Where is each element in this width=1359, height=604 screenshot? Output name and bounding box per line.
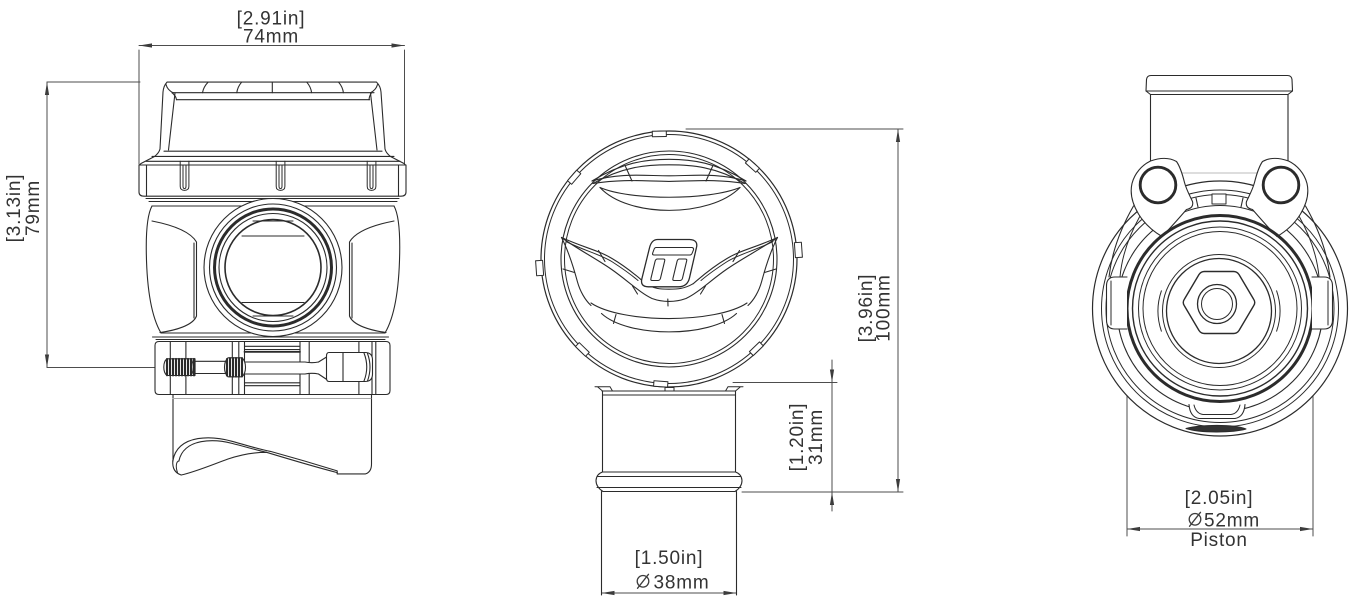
svg-text:[1.20in]: [1.20in]	[787, 403, 808, 472]
svg-text:31mm: 31mm	[806, 409, 827, 465]
svg-text:Piston: Piston	[1190, 530, 1248, 551]
svg-text:100mm: 100mm	[874, 274, 895, 341]
svg-text:79mm: 79mm	[23, 180, 44, 236]
svg-text:[2.05in]: [2.05in]	[1185, 488, 1254, 509]
svg-text:[1.50in]: [1.50in]	[635, 548, 704, 569]
svg-text:52mm: 52mm	[1204, 511, 1260, 532]
svg-text:[3.13in]: [3.13in]	[4, 174, 25, 243]
svg-text:38mm: 38mm	[654, 573, 710, 594]
svg-text:74mm: 74mm	[243, 27, 299, 48]
